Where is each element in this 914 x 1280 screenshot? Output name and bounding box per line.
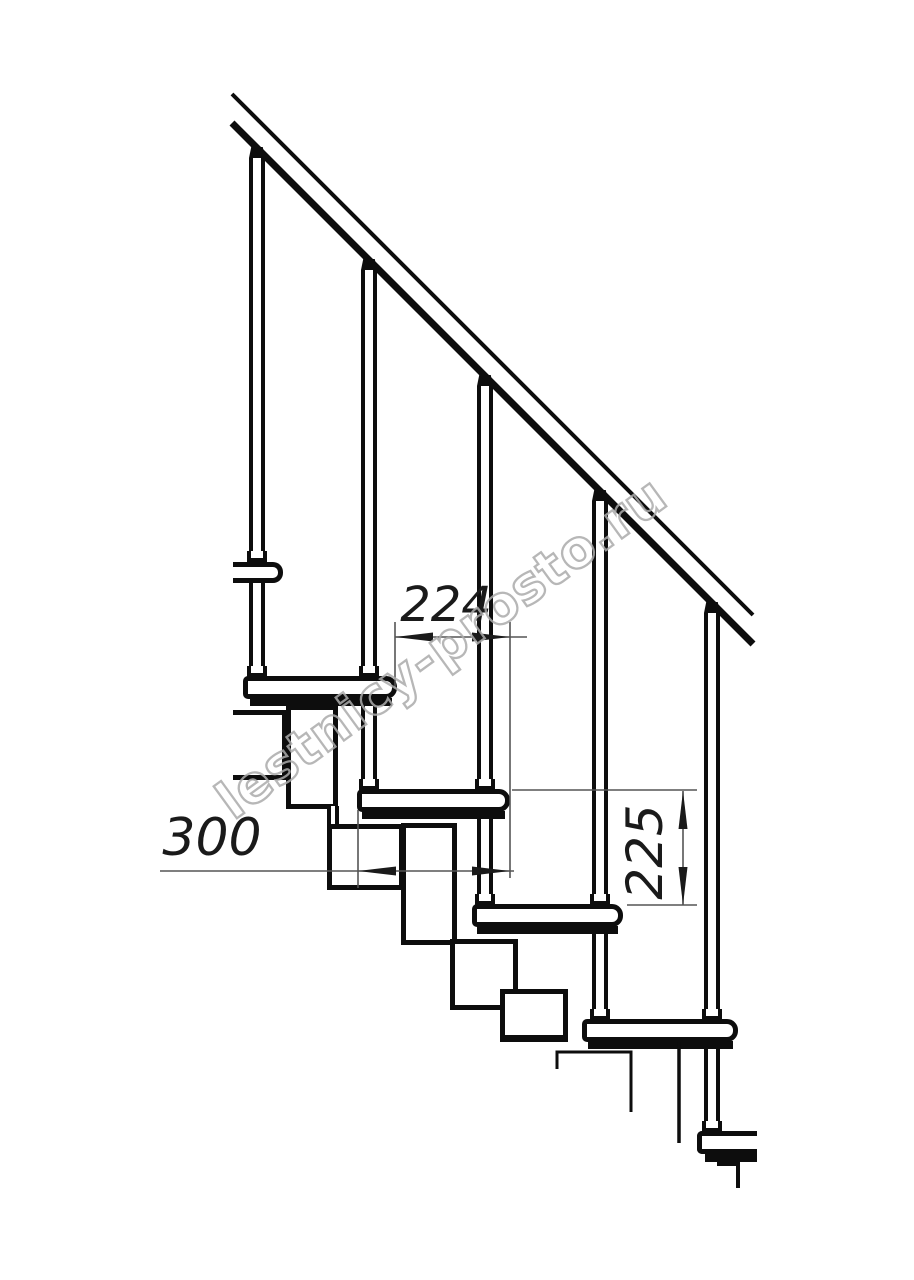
baluster-cap-5 (704, 602, 720, 613)
dimension-rise-label: 225 (616, 804, 674, 899)
tread-2 (243, 676, 397, 699)
tread-4-shadow (477, 926, 618, 934)
broken-module-outline-3 (717, 1164, 738, 1188)
stringer-module-box-1 (286, 705, 338, 809)
baluster-2-foot (359, 779, 379, 790)
baluster-3 (477, 386, 493, 896)
tread-6-shadow (705, 1153, 757, 1162)
tread-6-bottom-partial (697, 1131, 757, 1154)
baluster-1-foot (247, 666, 267, 677)
baluster-2-collar-upper (359, 666, 379, 677)
baluster-3-foot (475, 894, 495, 905)
tread-4 (472, 904, 623, 927)
dimension-depth-label: 300 (162, 808, 261, 868)
baluster-4-foot (590, 1009, 610, 1020)
baluster-5-collar-upper (702, 1009, 722, 1020)
baluster-cap-4 (592, 490, 608, 501)
stringer-module-box-left (233, 710, 287, 780)
baluster-3-collar-upper (475, 779, 495, 790)
tread-5-shadow (588, 1041, 733, 1049)
arrowhead-run-left (395, 633, 433, 642)
baluster-4 (592, 501, 608, 1011)
baluster-4-collar-upper (590, 894, 610, 905)
baluster-cap-3 (477, 375, 493, 386)
baluster-1-collar-upper (247, 551, 267, 562)
tread-3 (357, 789, 510, 812)
baluster-cap-1 (249, 147, 265, 158)
tread-3-shadow (362, 811, 505, 819)
arrowhead-rise-bottom (679, 867, 688, 905)
tread-1-top-partial (233, 562, 283, 583)
baluster-cap-2 (361, 259, 377, 270)
stringer-module-box-2 (327, 824, 404, 890)
stringer-module-box-3 (401, 823, 457, 945)
baluster-5-foot (702, 1121, 722, 1132)
stringer-module-box-5 (500, 989, 568, 1042)
tread-2-shadow (250, 698, 392, 706)
staircase-drawing: 224 300 225 lestnicy-prosto.ru (0, 0, 914, 1280)
broken-module-outline-1 (557, 1052, 631, 1112)
arrowhead-rise-top (679, 791, 688, 829)
tread-5 (582, 1019, 738, 1042)
baluster-1 (249, 158, 265, 668)
